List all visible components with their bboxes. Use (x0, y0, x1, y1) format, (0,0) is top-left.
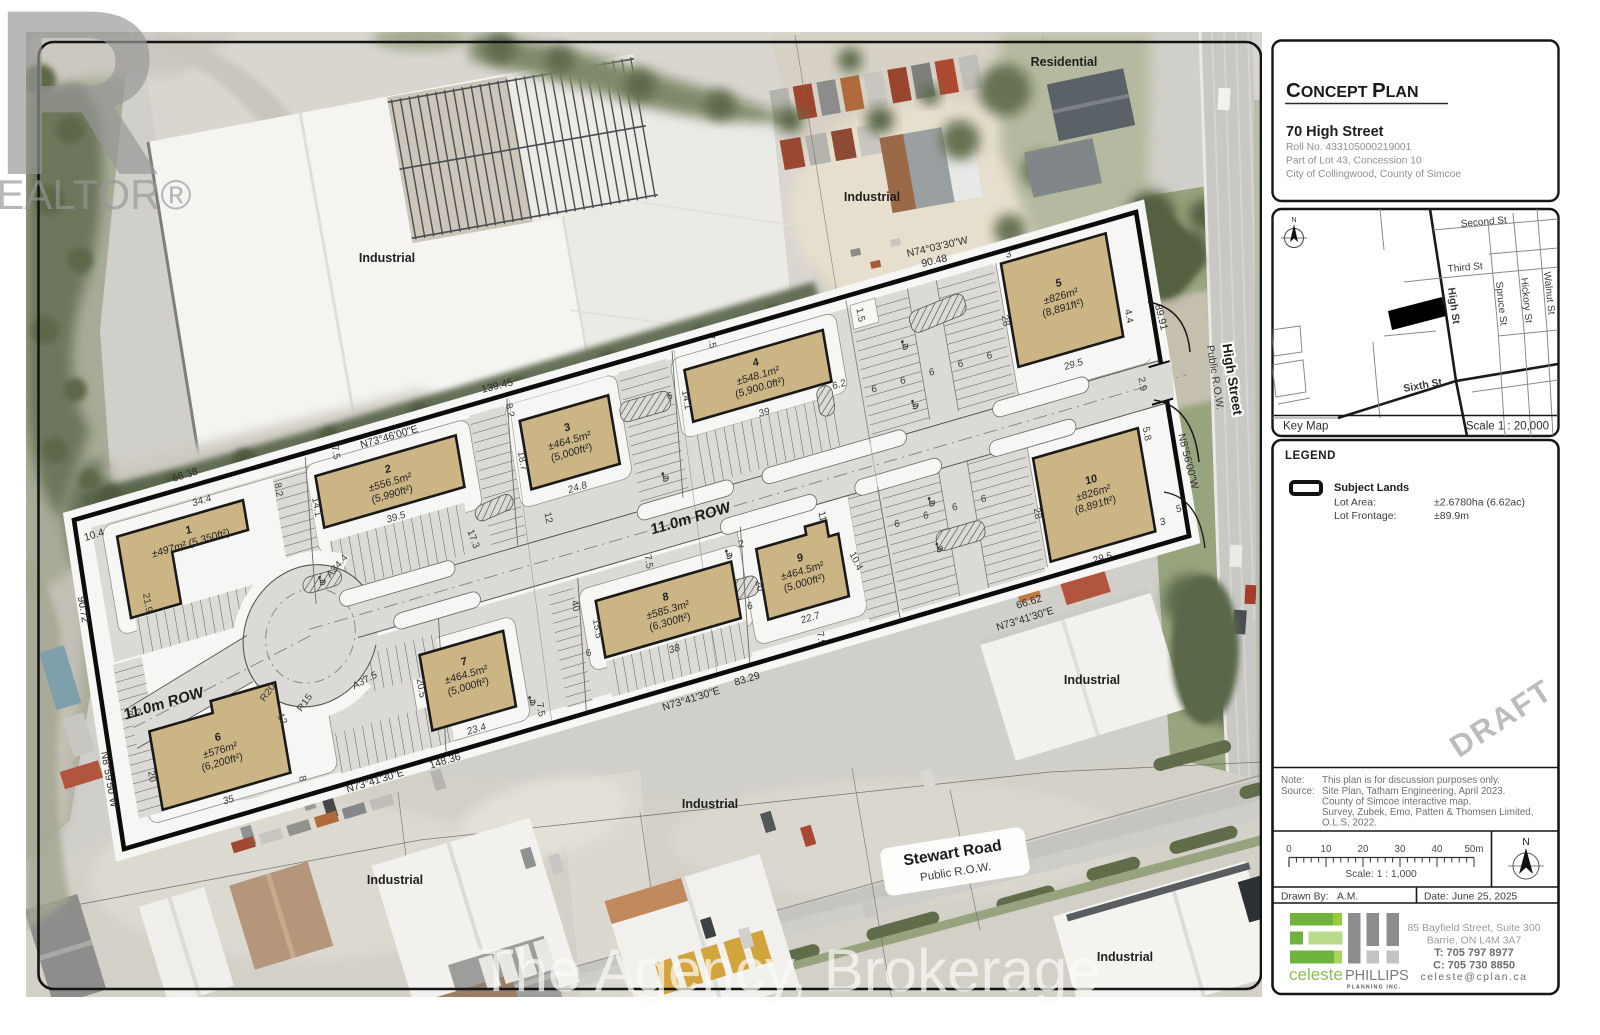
svg-text:±89.9m: ±89.9m (1434, 510, 1469, 522)
svg-text:50m: 50m (1464, 844, 1483, 855)
svg-text:Lot Frontage:: Lot Frontage: (1334, 510, 1396, 522)
svg-text:Subject Lands: Subject Lands (1334, 482, 1409, 494)
svg-text:N: N (1522, 836, 1530, 848)
svg-text:celeste: celeste (1289, 965, 1343, 984)
svg-text:Roll No. 433105000219001: Roll No. 433105000219001 (1286, 142, 1412, 153)
svg-text:A.M.: A.M. (1337, 892, 1358, 903)
svg-text:Industrial: Industrial (844, 190, 900, 204)
svg-text:Part of Lot 43, Concession 10: Part of Lot 43, Concession 10 (1286, 156, 1422, 167)
svg-text:20: 20 (1358, 844, 1369, 855)
svg-text:0: 0 (1286, 844, 1292, 855)
svg-text:Scale 1 : 20,000: Scale 1 : 20,000 (1466, 421, 1549, 433)
svg-text:30: 30 (1395, 844, 1406, 855)
svg-text:celeste@cplan.ca: celeste@cplan.ca (1420, 971, 1527, 983)
svg-text:Survey, Zubek, Emo, Patten & T: Survey, Zubek, Emo, Patten & Thomsen Lim… (1322, 807, 1533, 818)
svg-text:LEGEND: LEGEND (1285, 450, 1336, 462)
svg-text:Industrial: Industrial (1064, 673, 1120, 687)
svg-text:Drawn By:: Drawn By: (1281, 892, 1329, 903)
svg-text:Industrial: Industrial (367, 873, 423, 887)
svg-text:PHILLIPS: PHILLIPS (1345, 968, 1409, 984)
svg-text:±2.6780ha (6.62ac): ±2.6780ha (6.62ac) (1434, 497, 1525, 509)
svg-text:Lot Area:: Lot Area: (1334, 497, 1376, 509)
svg-text:City of Collingwood, County of: City of Collingwood, County of Simcoe (1286, 169, 1461, 180)
svg-text:N: N (1291, 217, 1296, 224)
svg-text:Site Plan, Tatham Engineering,: Site Plan, Tatham Engineering, April 202… (1322, 786, 1505, 797)
svg-text:Industrial: Industrial (359, 251, 415, 265)
svg-text:10: 10 (1321, 844, 1332, 855)
svg-text:The Agency, Brokerage: The Agency, Brokerage (478, 937, 1101, 1004)
svg-text:June 25, 2025: June 25, 2025 (1452, 892, 1518, 903)
svg-text:70 High Street: 70 High Street (1286, 124, 1384, 140)
svg-text:This plan is for discussion pu: This plan is for discussion purposes onl… (1322, 775, 1500, 786)
svg-text:Industrial: Industrial (682, 797, 738, 811)
svg-text:REALTOR®: REALTOR® (0, 171, 191, 218)
svg-text:Date:: Date: (1424, 892, 1449, 903)
svg-text:Residential: Residential (1031, 55, 1098, 69)
svg-text:T: 705 797 8977: T: 705 797 8977 (1434, 947, 1514, 959)
svg-text:Scale: 1 : 1,000: Scale: 1 : 1,000 (1345, 869, 1417, 880)
svg-text:Industrial: Industrial (1097, 950, 1153, 964)
svg-text:C: 705 730 8850: C: 705 730 8850 (1433, 960, 1515, 972)
svg-text:PLANNING INC.: PLANNING INC. (1347, 985, 1402, 991)
svg-text:Source:: Source: (1281, 786, 1315, 797)
svg-text:Key Map: Key Map (1283, 421, 1328, 433)
svg-text:County of Simcoe interactive m: County of Simcoe interactive map. (1322, 797, 1471, 808)
svg-text:O.L.S, 2022.: O.L.S, 2022. (1322, 818, 1377, 829)
svg-text:Barrie, ON L4M 3A7: Barrie, ON L4M 3A7 (1427, 935, 1522, 947)
svg-text:85 Bayfield Street, Suite 300: 85 Bayfield Street, Suite 300 (1407, 922, 1540, 934)
svg-text:Note:: Note: (1281, 775, 1304, 786)
svg-text:40: 40 (1432, 844, 1443, 855)
